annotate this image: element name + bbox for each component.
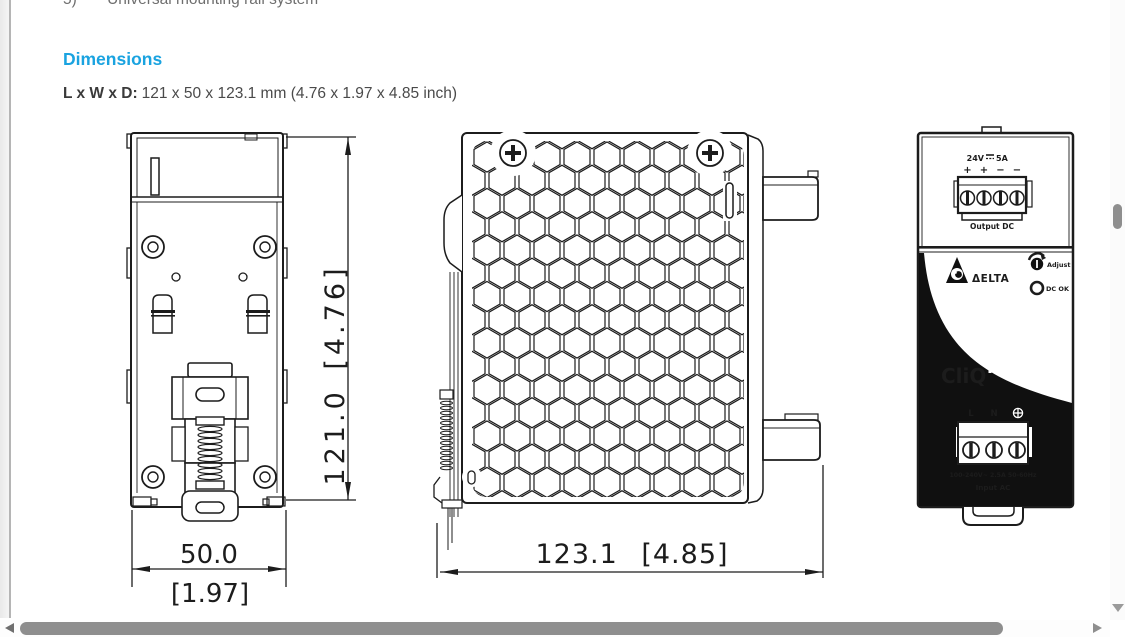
scroll-down-arrow-icon[interactable] — [1112, 604, 1124, 612]
phillips-screw-icon — [500, 140, 526, 166]
size-label: L x W x D: — [63, 85, 138, 102]
polarity-mark: − — [1013, 165, 1021, 176]
screw-terminal-icon — [963, 442, 1025, 458]
horizontal-scrollbar[interactable] — [0, 620, 1110, 637]
width-dimension-label-inch: [1.97] — [171, 579, 249, 609]
output-voltage-label: 24V — [967, 154, 985, 163]
output-terminal-block — [954, 177, 1032, 220]
section-heading-dimensions: Dimensions — [63, 49, 162, 70]
phillips-screw-icon — [697, 140, 723, 166]
side-view-drawing: 123.1 [4.85] — [420, 125, 840, 585]
size-value: 121 x 50 x 123.1 mm (4.76 x 1.97 x 4.85 … — [142, 85, 457, 102]
dimensions-spec-line: L x W x D:121 x 50 x 123.1 mm (4.76 x 1.… — [63, 85, 457, 103]
input-rating-label: 100-240V~ 2.5A 50-60Hz — [950, 472, 1037, 479]
terminal-connector-top — [763, 171, 818, 220]
product-line-logo: CliQ — [941, 364, 986, 388]
scroll-left-arrow-icon[interactable] — [5, 623, 14, 633]
cliq-tick-mark — [989, 366, 992, 373]
input-terminal-n-label: N — [990, 409, 997, 419]
din-clip-assembly — [172, 363, 248, 521]
din-clip-profile — [434, 195, 462, 550]
depth-dimension-label: 123.1 [4.85] — [535, 539, 728, 570]
output-dc-label: Output DC — [970, 222, 1014, 231]
horizontal-scrollbar-thumb[interactable] — [20, 622, 1003, 635]
dc-ok-led-icon — [1031, 282, 1043, 294]
vent-honeycomb-pattern — [472, 141, 744, 497]
input-ac-label: Input AC — [976, 483, 1011, 492]
adjust-label: Adjust — [1047, 261, 1071, 269]
bottom-din-tab — [963, 507, 1023, 525]
scroll-right-arrow-icon[interactable] — [1093, 623, 1102, 633]
list-item-number: 5) — [63, 0, 77, 9]
height-dimension-label: 121.0 [4.76] — [320, 264, 351, 485]
dc-ok-label: DC OK — [1046, 285, 1070, 293]
terminal-connector-bottom — [763, 414, 820, 460]
list-item-text: Universal mounting rail system — [107, 0, 318, 9]
page-edge-shadow — [0, 0, 11, 618]
polarity-mark: + — [980, 165, 988, 176]
brand-wordmark: ΔELTA — [972, 273, 1010, 285]
vertical-scrollbar[interactable] — [1110, 0, 1125, 620]
side-slot — [726, 183, 733, 218]
input-terminal-block — [956, 422, 1032, 464]
back-latch-right — [246, 295, 270, 333]
back-latch-left — [151, 295, 175, 333]
output-current-label: 5A — [996, 154, 1009, 163]
back-view-drawing: 121.0 [4.76] 50.0 [1.97] — [120, 125, 380, 615]
clipped-list-item: 5) Universal mounting rail system — [63, 0, 318, 9]
vertical-scrollbar-thumb[interactable] — [1113, 204, 1122, 229]
width-dimension-label-mm: 50.0 — [180, 540, 238, 570]
polarity-mark: − — [996, 165, 1004, 176]
earth-ground-icon — [1013, 408, 1022, 417]
input-terminal-l-label: L — [968, 409, 974, 419]
polarity-mark: + — [963, 165, 971, 176]
datasheet-viewer: 5) Universal mounting rail system Dimens… — [0, 0, 1125, 637]
front-view-drawing: 24V 5A + + − − Output DC ΔELTA Adjust DC… — [900, 125, 1110, 535]
document-content: 5) Universal mounting rail system Dimens… — [13, 0, 1110, 620]
